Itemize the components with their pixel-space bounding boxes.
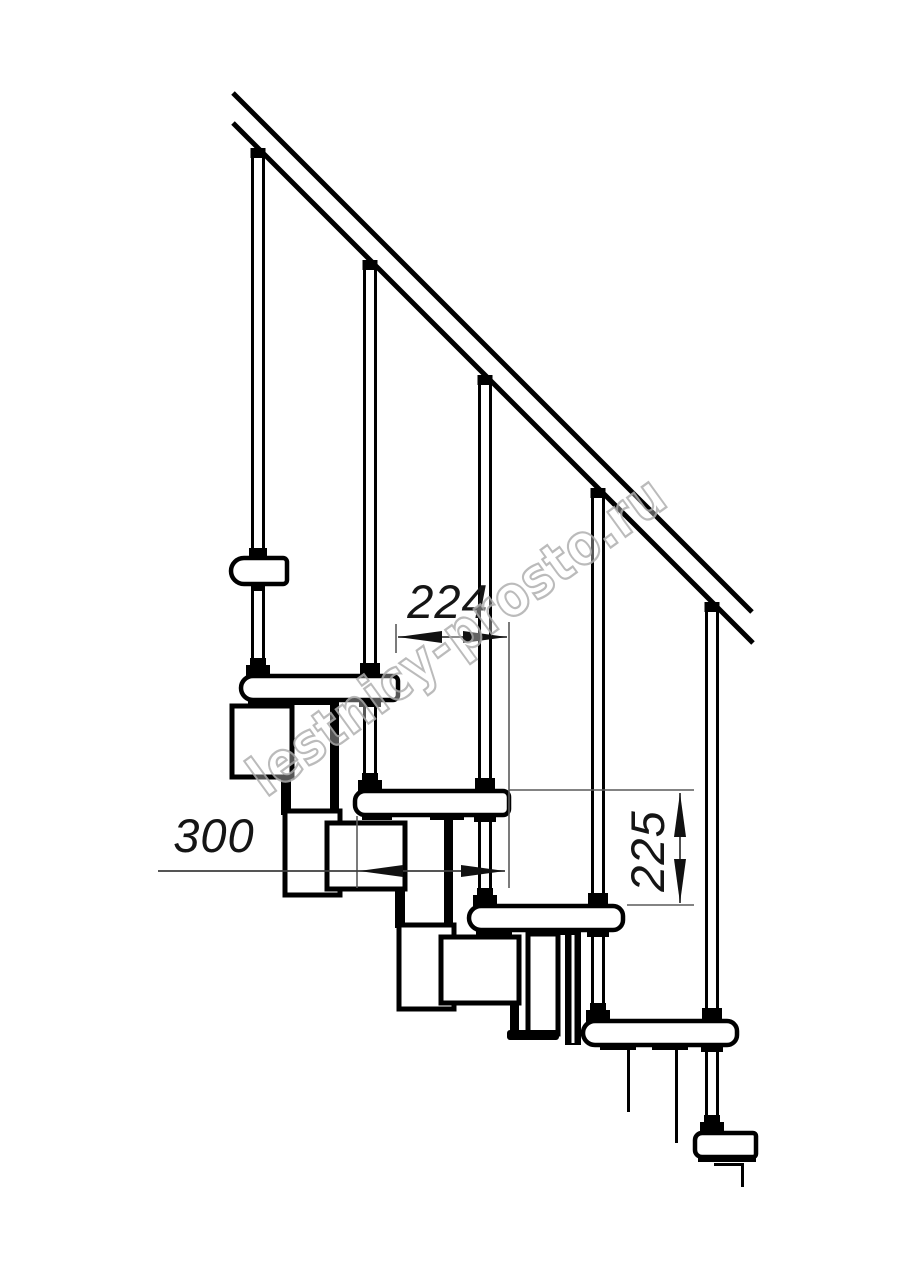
step-5 [583, 1021, 737, 1045]
arrowhead-right [461, 865, 505, 877]
baluster-collar [701, 1045, 723, 1052]
stringer-cut-line [741, 1163, 744, 1187]
step-1-end-view [231, 558, 287, 584]
baluster-clamp [475, 778, 495, 792]
stringer-cut-line [714, 1163, 744, 1166]
handrail-top-line [233, 93, 752, 612]
stringer-sleeve-box [327, 823, 405, 889]
baluster-foot [586, 1010, 610, 1022]
stringer-wall-extension [395, 887, 405, 928]
baluster-foot [700, 1122, 724, 1134]
arrowhead-up [674, 793, 686, 837]
watermark-text: lestnicy-prosto.ru [236, 463, 679, 809]
staircase-drawing: 224 300 225 lestnicy-prosto.ru [0, 0, 914, 1280]
baluster-collar [249, 548, 267, 559]
baluster-foot [473, 895, 497, 907]
baluster-foot-collar [362, 773, 378, 781]
step-6-end-view [695, 1133, 756, 1157]
stringer-tube-highlight [572, 927, 575, 1043]
arrowhead-down [674, 859, 686, 903]
stringer-base-plate [507, 1030, 559, 1040]
baluster-collar [474, 815, 496, 822]
baluster-cap [363, 260, 378, 270]
baluster-clamp [588, 893, 608, 907]
handrail-bottom-line [233, 123, 753, 643]
baluster-foot-collar [250, 658, 266, 666]
baluster-cap [251, 148, 266, 158]
baluster-foot-collar [590, 1003, 606, 1011]
baluster-clamp [702, 1008, 722, 1022]
stringer-cut-line [627, 1044, 630, 1112]
stringer-cut-line [675, 1041, 678, 1143]
baluster-collar [252, 584, 264, 591]
baluster-foot-collar [704, 1115, 720, 1123]
baluster-cap [705, 602, 720, 612]
stringer-wall-extension [510, 1001, 519, 1033]
baluster-foot [358, 780, 382, 792]
dimension-225: 225 [509, 790, 694, 905]
drawing-canvas: 224 300 225 lestnicy-prosto.ru [0, 0, 914, 1280]
baluster-foot [246, 665, 270, 677]
stringer-sleeve-box [441, 937, 519, 1003]
dimension-value: 300 [173, 809, 254, 862]
baluster-cap [478, 375, 493, 385]
handrail [233, 93, 753, 643]
dimension-value: 225 [621, 810, 674, 892]
baluster-foot-collar [477, 888, 493, 896]
step-3 [355, 791, 509, 815]
stringer-column [528, 934, 558, 1034]
baluster-collar [587, 930, 609, 937]
step-4 [469, 906, 623, 930]
